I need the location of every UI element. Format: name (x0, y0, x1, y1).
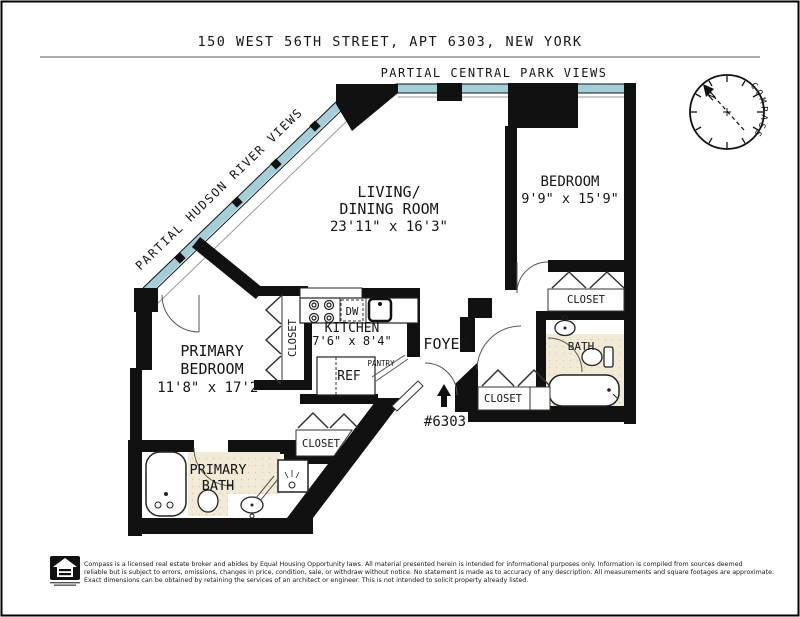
primary-closet-vertical-label: CLOSET (287, 318, 299, 357)
primary-tub-icon (146, 452, 186, 516)
disclaimer-line-1: Compass is a licensed real estate broker… (84, 561, 743, 568)
entry-arrow-icon (437, 384, 451, 407)
primary-bedroom-dims: 11'8" x 17'2" (157, 380, 267, 396)
floor-plan-page: 150 WEST 56TH STREET, APT 6303, NEW YORK… (0, 0, 800, 617)
bath-label: BATH (568, 340, 595, 353)
disclaimer-line-2: reliable but is subject to errors, omiss… (84, 569, 774, 576)
primary-closet-label: CLOSET (302, 438, 341, 450)
kitchen-dims: 7'6" x 8'4" (312, 334, 391, 348)
entry-door-leaf (392, 381, 423, 411)
page-title: 150 WEST 56TH STREET, APT 6303, NEW YORK (197, 34, 582, 50)
disclaimer-line-3: Exact dimensions can be obtained by reta… (84, 577, 528, 584)
equal-housing-logo (50, 556, 80, 586)
living-room-dims: 23'11" x 16'3" (330, 219, 448, 235)
bedroom-dims: 9'9" x 15'9" (521, 191, 619, 207)
primary-bath-label-2: BATH (202, 478, 235, 494)
living-room-label-2: DINING ROOM (339, 200, 438, 218)
shower-icon (278, 460, 308, 492)
primary-bedroom-label-2: BEDROOM (180, 360, 243, 378)
central-park-views-label: PARTIAL CENTRAL PARK VIEWS (381, 66, 608, 80)
hudson-window-band (146, 103, 341, 291)
bedroom-label: BEDROOM (540, 174, 599, 190)
compass-icon: N COMPASS (690, 75, 769, 149)
pantry-label: PANTRY (367, 359, 395, 368)
primary-bath-label-1: PRIMARY (190, 462, 247, 478)
foyer-closet-label: CLOSET (484, 393, 523, 405)
dishwasher-label: DW (346, 306, 359, 318)
primary-bedroom-label-1: PRIMARY (180, 342, 243, 360)
floor-plan: 150 WEST 56TH STREET, APT 6303, NEW YORK… (0, 0, 800, 617)
bedroom-closet-label: CLOSET (567, 294, 606, 306)
unit-number-label: #6303 (424, 414, 466, 430)
bath-area (546, 316, 624, 407)
hudson-river-views-label: PARTIAL HUDSON RIVER VIEWS (133, 105, 306, 273)
living-room-label-1: LIVING/ (357, 183, 420, 201)
foyer-label: FOYER (423, 335, 469, 353)
refrigerator-label: REF (337, 369, 361, 384)
kitchen-vent (300, 288, 362, 298)
footer: Compass is a licensed real estate broker… (50, 556, 774, 586)
